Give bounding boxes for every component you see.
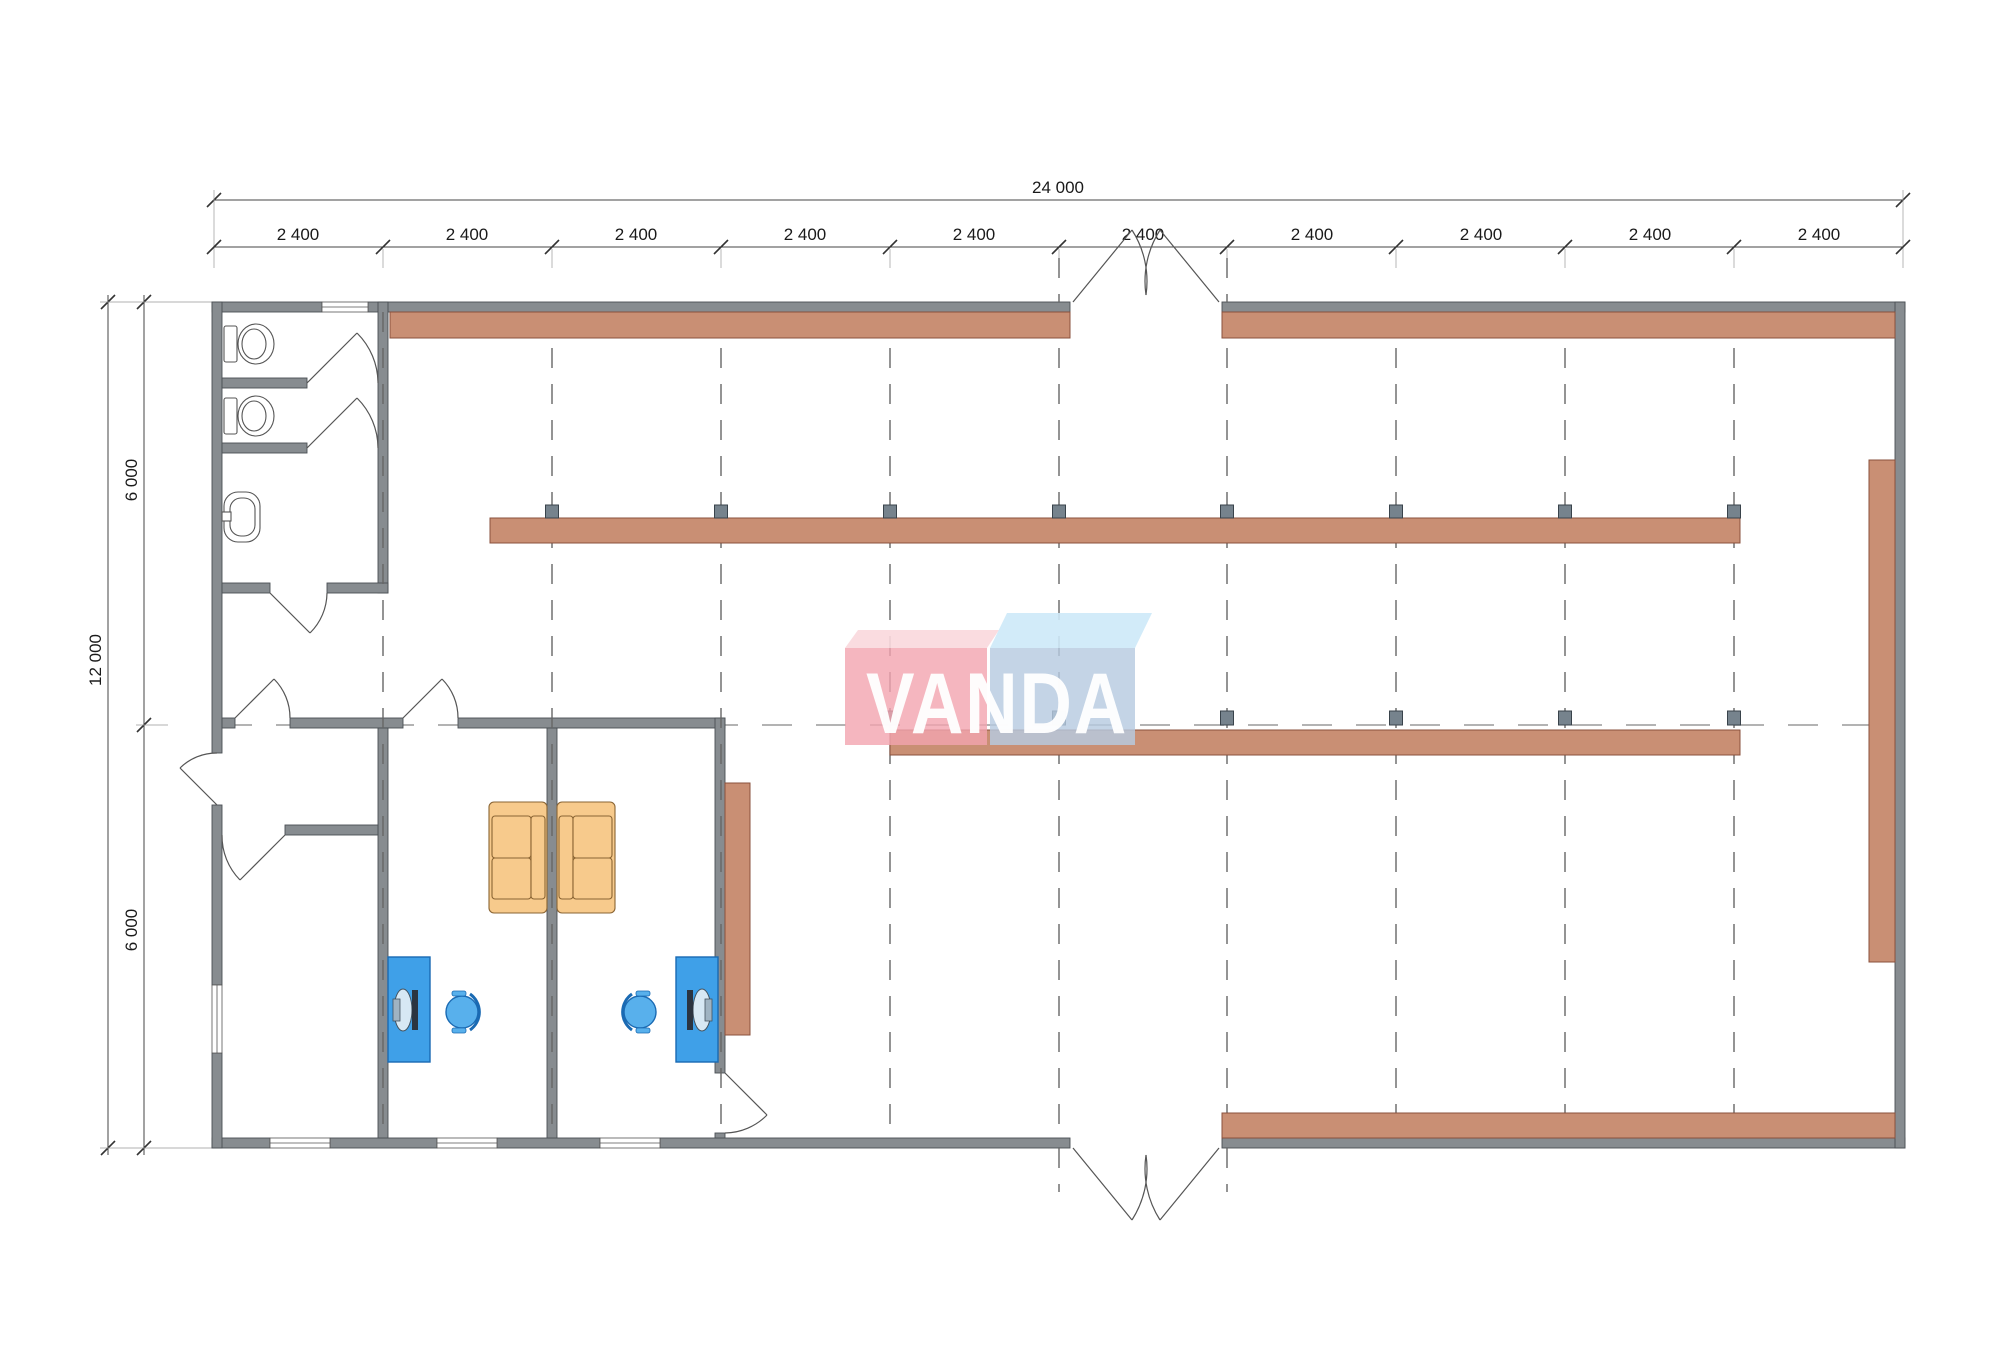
toilet-2 [224,396,274,436]
vanda-logo: VANDA [845,613,1152,752]
window-bottom-2 [437,1138,497,1148]
sofa-left [489,802,547,913]
dim-left-segment-label-2: 6 000 [122,909,141,952]
svg-text:2 400: 2 400 [277,225,320,244]
sofa-right [557,802,615,913]
logo-blue-box-top [990,613,1152,648]
chair-middle-office [446,991,479,1033]
dim-total-width-label: 24 000 [1032,178,1084,197]
door-nook [222,835,285,880]
chair-right-office [623,991,656,1033]
door-office-left [235,679,290,718]
svg-text:2 400: 2 400 [1460,225,1503,244]
shelf-row-top-left [390,312,1070,338]
window-top-wall [322,302,368,312]
window-left-wall [212,985,222,1053]
svg-text:2 400: 2 400 [1291,225,1334,244]
door-left-exterior [180,753,217,805]
svg-text:2 400: 2 400 [446,225,489,244]
toilet-1 [224,324,274,364]
shelf-row-top-right [1222,312,1895,338]
dim-total-height-label: 12 000 [86,634,105,686]
shelf-vertical-office-wall [725,783,750,1035]
window-bottom-3 [600,1138,660,1148]
dim-left-segment-label-1: 6 000 [122,459,141,502]
door-stall-2 [307,398,378,448]
desk-middle-office [388,957,430,1062]
door-office-middle [403,679,458,718]
wall-bathroom-bottom-a [222,583,270,593]
door-office-hall [725,1073,767,1133]
door-stall-1 [307,333,378,383]
dim-top-segment-labels: 2 400 2 400 2 400 2 400 2 400 2 400 2 40… [277,225,1841,244]
sink [222,492,260,542]
floor-plan-drawing: 24 000 2 400 2 400 2 400 2 400 2 400 2 4… [0,0,2000,1358]
desk-right-office [676,957,718,1062]
wall-stall-divider-1 [222,378,307,388]
floor-plan-page: 24 000 2 400 2 400 2 400 2 400 2 400 2 4… [0,0,2000,1358]
shelf-row-upper-middle [490,518,1740,543]
shelf-vertical-right-wall [1869,460,1895,962]
svg-text:2 400: 2 400 [1629,225,1672,244]
logo-pink-box-top [845,630,999,648]
wall-nook-stub [285,825,378,835]
wall-bathroom-right [378,302,388,593]
svg-text:2 400: 2 400 [615,225,658,244]
bathroom-fixtures [222,324,274,542]
shelf-row-bottom [1222,1113,1895,1138]
window-bottom-1 [270,1138,330,1148]
door-main-bottom [1073,1148,1219,1220]
svg-text:2 400: 2 400 [1798,225,1841,244]
wall-office-hall-b [715,1133,725,1138]
svg-text:2 400: 2 400 [953,225,996,244]
door-bathroom [270,593,327,633]
wall-bathroom-bottom-b [327,583,388,593]
svg-text:2 400: 2 400 [784,225,827,244]
logo-text: VANDA [866,656,1128,752]
wall-stall-divider-2 [222,443,307,453]
